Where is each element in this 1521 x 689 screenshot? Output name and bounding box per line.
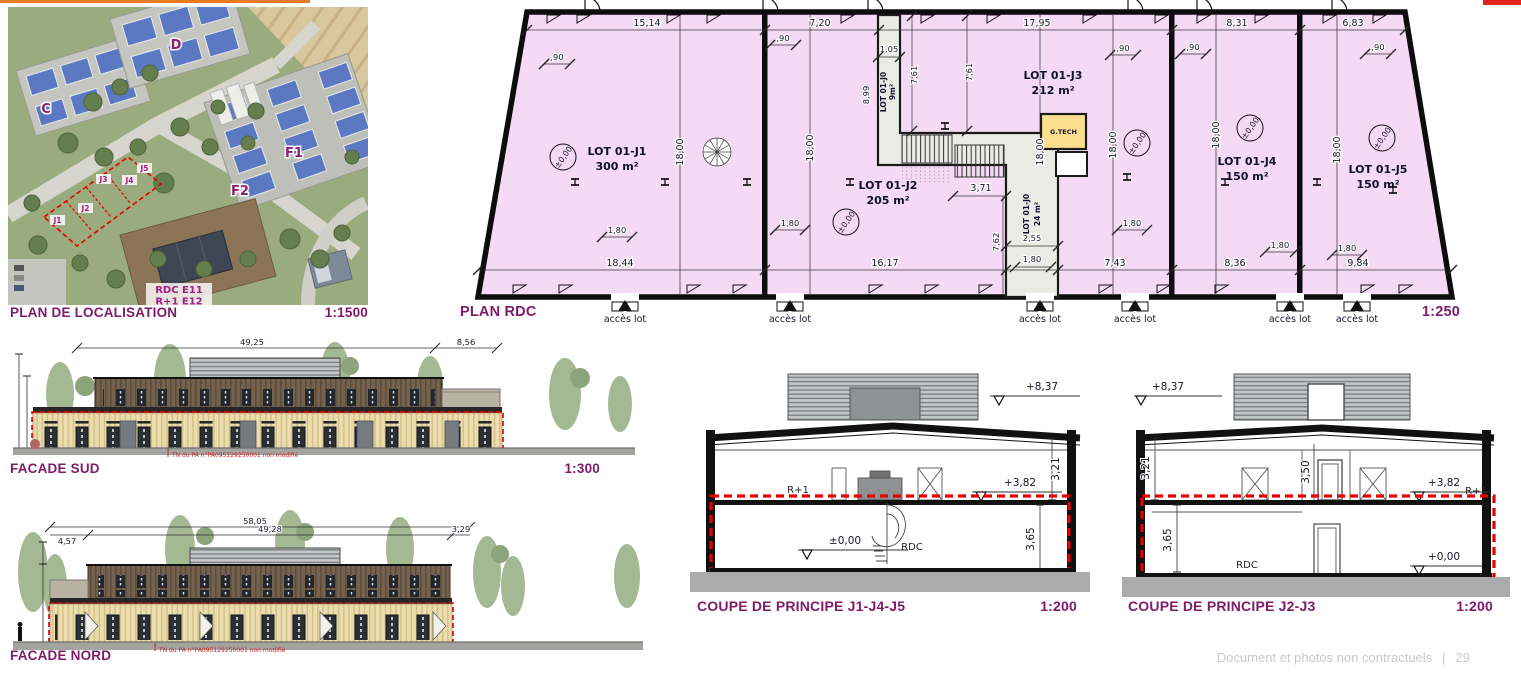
building-f1-label: F1 <box>285 146 303 161</box>
ground-strip <box>1122 577 1510 597</box>
upper-windows <box>103 389 435 410</box>
dim-top-5: 6,83 <box>1342 18 1363 29</box>
coupe-j1-caption: COUPE DE PRINCIPE J1-J4-J5 1:200 <box>697 598 1077 614</box>
page-number: 29 <box>1456 650 1470 665</box>
building-c-label: C <box>41 102 51 117</box>
annex-left <box>50 580 88 599</box>
dim-depth-3: 18,00 <box>1035 138 1046 165</box>
level-roof-marker: +8,37 <box>1134 381 1222 405</box>
dim-depth-2: 18,00 <box>805 134 816 161</box>
dim-corridor-door: 1,80 <box>1023 254 1041 264</box>
dim-bottom-1: 18,44 <box>606 258 633 269</box>
dim-180: 1,80 <box>608 225 626 235</box>
lot-j5-name: LOT 01-J5 <box>1349 163 1408 176</box>
rdc-annotation: RDC E11 R+1 E12 <box>146 283 212 305</box>
coupe-j2-scale: 1:200 <box>1456 598 1493 614</box>
facade-sud-drawing: 49,25 8,56 TN du PA n°PA095129250001 non… <box>5 336 645 462</box>
coupe2-level-roof: +8,37 <box>1152 381 1184 393</box>
dim-bottom-2: 16,17 <box>871 258 898 269</box>
localisation-scale: 1:1500 <box>325 305 368 320</box>
coupe1-level-roof: +8,37 <box>1026 381 1058 393</box>
dim-bottom-4: 8,36 <box>1224 258 1245 269</box>
dim-corridor-length: 8,99 <box>861 86 871 104</box>
coupe1-height-r1: 3,21 <box>1050 457 1062 480</box>
person-silhouette <box>18 622 23 641</box>
top-orange-rule <box>0 0 310 3</box>
facade-sud-dim-annex: 8,56 <box>457 337 475 347</box>
lot-j0-top-area: 9m² <box>888 84 897 100</box>
lot-j4-area: 150 m² <box>1225 170 1268 183</box>
localisation-caption: PLAN DE LOCALISATION 1:1500 <box>10 305 368 320</box>
facade-sud-note: TN du PA n°PA095129250001 non modifié <box>171 452 299 459</box>
coupe1-level-r1: +3,82 <box>1004 477 1036 489</box>
coupe-j1-title: COUPE DE PRINCIPE J1-J4-J5 <box>697 598 905 614</box>
annotation-line1: RDC E11 <box>155 285 203 296</box>
spiral-stair <box>872 503 905 564</box>
dim-7-62: 7,62 <box>991 233 1001 251</box>
level-roof-marker: +8,37 <box>990 381 1080 405</box>
right-column <box>1482 430 1491 590</box>
stair-run-upper <box>902 135 952 163</box>
ground-windows <box>38 421 497 448</box>
spiral-stair-symbol <box>703 138 731 166</box>
coupe-j2-caption: COUPE DE PRINCIPE J2-J3 1:200 <box>1128 598 1493 614</box>
footer-note: Document et photos non contractuels <box>1217 650 1432 665</box>
footer: Document et photos non contractuels|29 <box>1150 650 1470 665</box>
dim-top-3: 17,95 <box>1023 18 1050 29</box>
building-f2-label: F2 <box>231 184 249 199</box>
upper-windows <box>98 575 440 597</box>
lot-j4-label: J4 <box>124 176 133 185</box>
lot-j3-area: 212 m² <box>1031 84 1074 97</box>
lot-j1-name: LOT 01-J1 <box>588 145 647 158</box>
rooftop-dormer <box>1308 384 1344 420</box>
dim-3-71: 3,71 <box>970 183 991 194</box>
roof-slab <box>708 426 1080 438</box>
lot-j2-label: J2 <box>80 204 89 213</box>
dim-top-1: 15,14 <box>633 18 660 29</box>
coupe-j1-drawing: +8,37 R+1 +3,82 3,21 RDC ±0,00 3,65 <box>690 372 1090 598</box>
annotation-line2: R+1 E12 <box>155 297 202 306</box>
facade-nord-caption: FACADE NORD <box>10 648 600 663</box>
coupe1-rdc-label: RDC <box>901 542 923 553</box>
facade-nord-dim-left: 4,57 <box>58 536 76 546</box>
dim-90: ,90 <box>1186 42 1199 52</box>
building-d-label: D <box>171 38 182 53</box>
dim-rdc-height: 3,65 <box>1025 505 1044 570</box>
coupe2-height-r1: 3,21 <box>1140 456 1152 479</box>
floor-slab <box>715 500 1067 505</box>
dim-90: ,90 <box>1116 43 1129 53</box>
facade-nord-dim-right: 3,29 <box>452 524 470 534</box>
parked-cars <box>14 265 24 291</box>
roof-slab <box>1138 428 1494 438</box>
dim-7-61-b: 7,61 <box>964 63 974 81</box>
lot-j4-name: LOT 01-J4 <box>1218 155 1277 168</box>
dim-depth-6: 18,00 <box>1332 136 1343 163</box>
facade-sud-dim-main: 49,25 <box>240 337 264 347</box>
dim-90: ,90 <box>550 52 563 62</box>
level-rdc-marker: ±0,00 <box>798 535 908 559</box>
bush <box>30 439 40 449</box>
rooftop-unit <box>850 388 920 420</box>
facade-nord-title: FACADE NORD <box>10 648 111 663</box>
floor-slab <box>1145 500 1491 505</box>
lot-j0-top-name: LOT 01-J0 <box>879 72 888 112</box>
ground-windows <box>55 612 447 640</box>
coupe2-level-rdc: +0,00 <box>1428 551 1460 563</box>
dim-180: 1,80 <box>1271 240 1289 250</box>
dim-top-2: 7,20 <box>809 18 830 29</box>
dim-180: 1,80 <box>1123 218 1141 228</box>
lot-j1-label: J1 <box>52 216 61 225</box>
dim-bottom-3: 7,43 <box>1104 258 1125 269</box>
plan-rdc-scale: 1:250 <box>1422 304 1460 320</box>
coupe-j2-title: COUPE DE PRINCIPE J2-J3 <box>1128 598 1315 614</box>
facade-nord-drawing: 58,05 49,28 4,57 3,29 TN du PA n°PA09512… <box>5 494 650 660</box>
tech-room-label: G.TECH <box>1050 128 1077 136</box>
facade-nord-dim-main: 49,28 <box>258 524 282 534</box>
dim-90: ,90 <box>776 33 789 43</box>
plan-rdc-title: PLAN RDC <box>460 304 537 320</box>
lot-j1-area: 300 m² <box>595 160 638 173</box>
roof-louver <box>190 548 340 565</box>
lot-j2-area: 205 m² <box>866 194 909 207</box>
roof-louver <box>190 358 340 378</box>
localisation-title: PLAN DE LOCALISATION <box>10 305 177 320</box>
lot-j2-name: LOT 01-J2 <box>859 179 918 192</box>
dim-depth-5: 18,00 <box>1211 121 1222 148</box>
lot-j0-mid-name: LOT 01-J0 <box>1022 194 1031 234</box>
facade-sud-title: FACADE SUD <box>10 461 100 476</box>
ground-strip <box>690 572 1090 592</box>
dim-180: 1,80 <box>1338 243 1356 253</box>
dim-rdc-height: 3,65 <box>1162 505 1181 572</box>
facade-sud-caption: FACADE SUD 1:300 <box>10 461 600 476</box>
level-rdc-marker: +0,00 <box>1410 551 1482 575</box>
plan-rdc-caption: PLAN RDC 1:250 <box>460 304 1460 320</box>
lot-j5-label: J5 <box>139 164 148 173</box>
lot-j0-mid-area: 24 m² <box>1033 202 1042 226</box>
coupe1-level-rdc: ±0,00 <box>829 535 861 547</box>
localisation-aerial-photo: J1 J2 J3 J4 J5 C D F1 F2 RDC E11 R+1 E12 <box>8 7 368 305</box>
plan-rdc-drawing: G.TECH 15,14 7,20 17,95 8,31 6,83 18,44 … <box>455 0 1521 335</box>
dim-depth-1: 18,00 <box>675 138 686 165</box>
dim-top-4: 8,31 <box>1226 18 1247 29</box>
coupe-j2-drawing: +8,37 3,21 3,50 +3,82 R+1 RDC +0,00 3 <box>1122 372 1510 598</box>
dim-r1-height: 3,21 <box>1048 438 1062 500</box>
dim-depth-4: 18,00 <box>1108 131 1119 158</box>
ground-strip <box>13 448 635 455</box>
coupe2-level-r1: +3,82 <box>1428 477 1460 489</box>
footer-separator: | <box>1442 650 1445 665</box>
coupe2-height-mid: 3,50 <box>1300 460 1312 483</box>
facade-sud-scale: 1:300 <box>564 461 600 476</box>
coupe2-height-rdc: 3,65 <box>1162 528 1174 551</box>
stair-run-lower <box>955 145 1004 177</box>
coupe-j1-scale: 1:200 <box>1040 598 1077 614</box>
coupe2-rdc-label: RDC <box>1236 560 1258 571</box>
lot-j3-name: LOT 01-J3 <box>1024 69 1083 82</box>
small-room <box>1056 152 1087 176</box>
coupe1-height-rdc: 3,65 <box>1025 527 1037 550</box>
dim-7-61-a: 7,61 <box>909 66 919 84</box>
lot-j3-label: J3 <box>98 175 107 184</box>
coupe1-r1-label: R+1 <box>787 485 809 496</box>
dim-90: ,90 <box>1371 42 1384 52</box>
rdc-red-outline <box>711 496 1069 574</box>
dim-180: 1,80 <box>781 218 799 228</box>
